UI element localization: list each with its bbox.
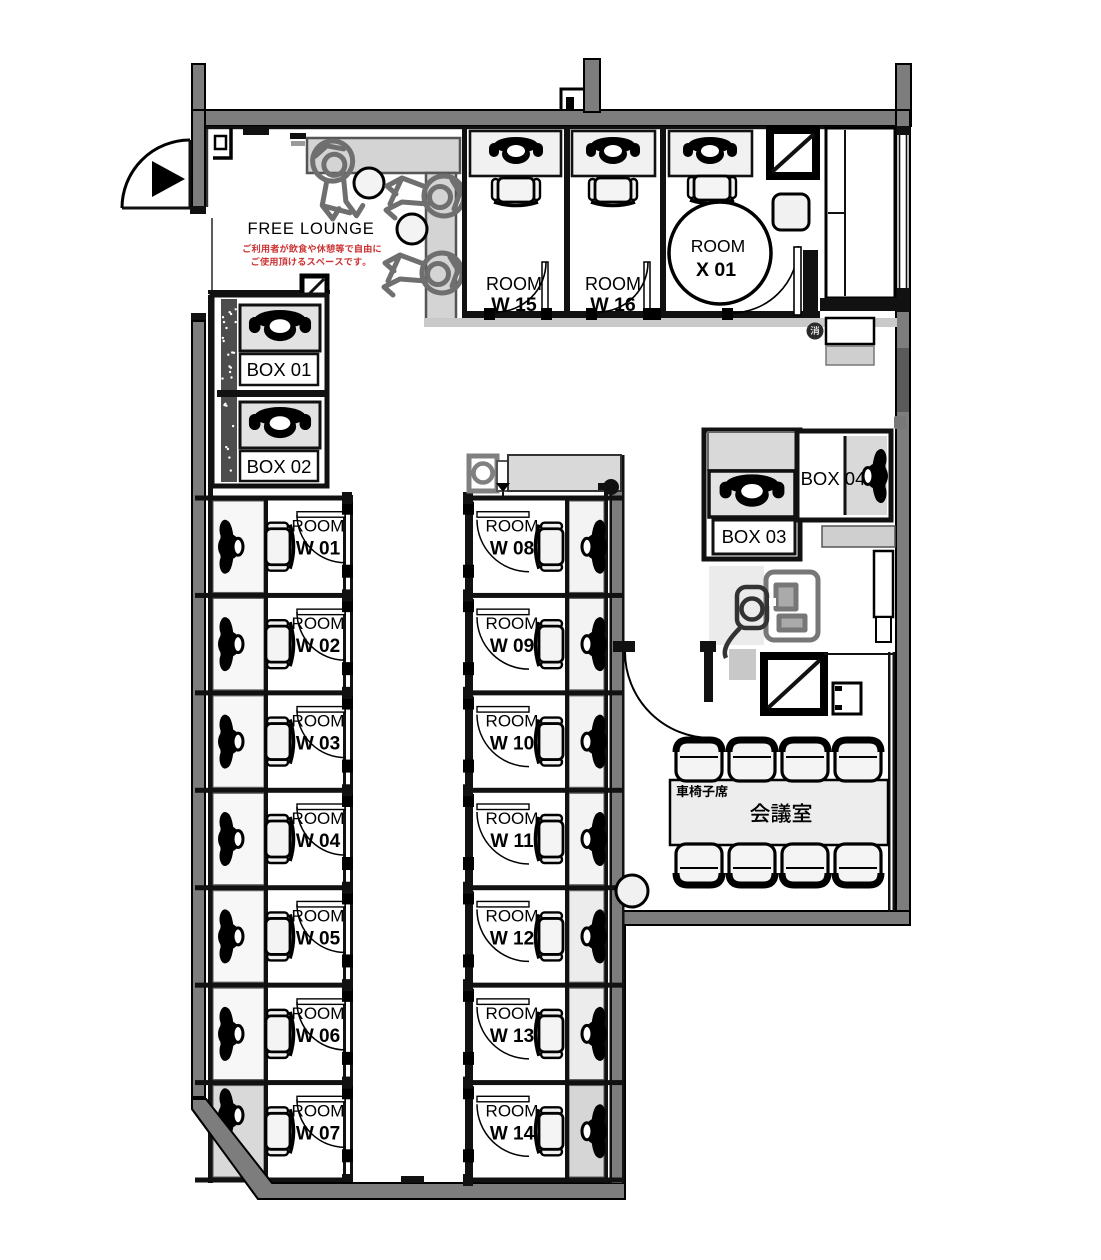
svg-text:X 01: X 01	[696, 259, 736, 281]
svg-text:W 13: W 13	[490, 1026, 534, 1047]
svg-text:BOX 02: BOX 02	[247, 456, 312, 477]
svg-text:ROOM: ROOM	[292, 906, 345, 925]
svg-text:W 15: W 15	[491, 294, 537, 316]
svg-text:BOX 04: BOX 04	[801, 468, 866, 489]
svg-text:W 10: W 10	[490, 734, 534, 755]
svg-text:W 09: W 09	[490, 636, 534, 657]
svg-text:ROOM: ROOM	[486, 517, 539, 536]
svg-text:W 14: W 14	[490, 1123, 535, 1144]
svg-text:W 16: W 16	[590, 294, 636, 316]
svg-text:W 07: W 07	[296, 1123, 340, 1144]
svg-text:W 01: W 01	[296, 539, 341, 560]
svg-text:FREE LOUNGE: FREE LOUNGE	[247, 220, 374, 238]
svg-text:ROOM: ROOM	[486, 906, 539, 925]
svg-text:ROOM: ROOM	[292, 1004, 345, 1023]
svg-text:W 08: W 08	[490, 539, 534, 560]
svg-text:W 06: W 06	[296, 1026, 340, 1047]
svg-text:ROOM: ROOM	[486, 809, 539, 828]
svg-text:ROOM: ROOM	[486, 274, 542, 294]
svg-text:BOX 03: BOX 03	[722, 526, 787, 547]
svg-text:W 02: W 02	[296, 636, 340, 657]
svg-text:W 04: W 04	[296, 831, 341, 852]
svg-text:W 11: W 11	[490, 831, 534, 852]
svg-text:W 05: W 05	[296, 928, 341, 949]
svg-text:W 12: W 12	[490, 928, 534, 949]
svg-text:BOX 01: BOX 01	[247, 359, 312, 380]
svg-text:W 03: W 03	[296, 734, 340, 755]
svg-text:ROOM: ROOM	[486, 1004, 539, 1023]
svg-text:ROOM: ROOM	[585, 274, 641, 294]
svg-text:ROOM: ROOM	[486, 614, 539, 633]
svg-text:ROOM: ROOM	[292, 517, 345, 536]
svg-text:ROOM: ROOM	[292, 1101, 345, 1120]
svg-text:ROOM: ROOM	[486, 1101, 539, 1120]
svg-text:ROOM: ROOM	[292, 809, 345, 828]
svg-text:ROOM: ROOM	[691, 236, 745, 256]
svg-text:ROOM: ROOM	[292, 712, 345, 731]
svg-text:ROOM: ROOM	[486, 712, 539, 731]
svg-text:ROOM: ROOM	[292, 614, 345, 633]
